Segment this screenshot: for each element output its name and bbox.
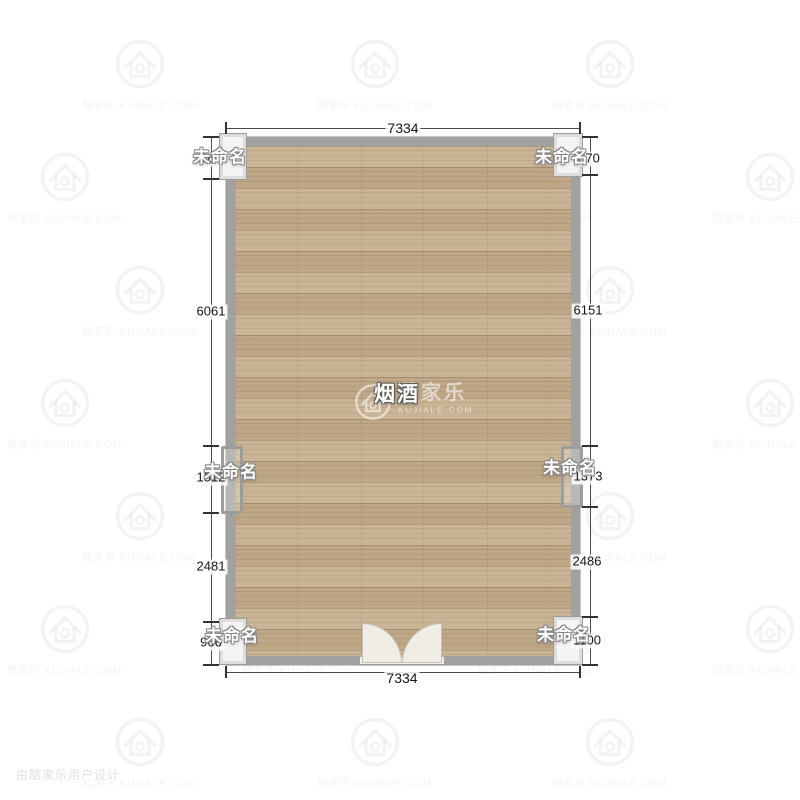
window-label-mid-left: 未命名 [204,458,258,483]
kujiale-logo-icon [38,602,92,656]
window-label-mid-right: 未命名 [543,454,597,479]
window-label-top-left: 未命名 [193,143,247,168]
dimension-tick [203,664,219,666]
dim-left-3: 2481 [195,560,228,575]
kujiale-logo-icon [348,715,402,769]
dimension-tick [203,512,219,514]
watermark-tile: 酷家乐 KUJIALE.COM [300,37,450,112]
dimension-tick [582,136,598,138]
kujiale-logo-icon [743,602,797,656]
dim-bottom-width: 7334 [384,670,419,686]
kujiale-logo-icon [113,37,167,91]
watermark-tile: 酷家乐 KUJIALE.COM [535,37,685,112]
dimension-tick [582,506,598,508]
dimension-tick [579,122,581,134]
kujiale-logo-icon [38,150,92,204]
watermark-tile: 酷家乐 KUJIALE.COM [695,150,800,225]
kujiale-logo-icon [113,489,167,543]
window-label-top-right: 未命名 [535,143,589,168]
dim-left-1: 6061 [195,305,228,320]
kujiale-logo-icon [743,150,797,204]
watermark-tile: 酷家乐 KUJIALE.COM [695,376,800,451]
kujiale-logo-icon [743,376,797,430]
dimension-line-left [211,137,212,665]
kujiale-logo-icon [583,37,637,91]
dimension-line-right [590,137,591,665]
kujiale-logo-icon [38,376,92,430]
kujiale-logo-icon [113,715,167,769]
kujiale-logo-icon [348,37,402,91]
dim-top-width: 7334 [385,120,420,136]
dimension-tick [225,122,227,134]
watermark-tile: 酷家乐 KUJIALE.COM [65,489,215,564]
dimension-tick [225,666,227,678]
watermark-tile: 酷家乐 KUJIALE.COM [300,715,450,790]
window-label-bottom-left: 未命名 [205,622,259,647]
dim-right-1: 6151 [572,304,605,319]
dimension-tick [203,445,219,447]
watermark-tile: 酷家乐 KUJIALE.COM [65,263,215,338]
dimension-tick [582,616,598,618]
window-label-bottom-right: 未命名 [537,621,591,646]
room-name-label: 烟酒 [374,378,420,408]
dim-right-3: 2486 [571,555,604,570]
kujiale-logo-icon [583,715,637,769]
dimension-tick [203,136,219,138]
watermark-tile: 酷家乐 KUJIALE.COM [0,602,140,677]
kujiale-logo-icon [583,489,637,543]
dimension-tick [579,666,581,678]
dimension-tick [582,445,598,447]
watermark-tile: 酷家乐 KUJIALE.COM [695,602,800,677]
floorplan-canvas: 酷家乐 KUJIALE.COM 酷家乐 KUJIALE.COM 酷家乐 KUJI… [0,0,800,800]
dimension-tick [582,174,598,176]
watermark-tile: 酷家乐 KUJIALE.COM [65,37,215,112]
footer-credit-watermark: 由酷家乐用户设计 [16,766,120,783]
dimension-tick [203,178,219,180]
dimension-tick [582,664,598,666]
watermark-tile: 酷家乐 KUJIALE.COM [535,715,685,790]
kujiale-logo-icon [113,263,167,317]
watermark-tile: 酷家乐 KUJIALE.COM [0,376,140,451]
watermark-tile: 酷家乐 KUJIALE.COM [0,150,140,225]
